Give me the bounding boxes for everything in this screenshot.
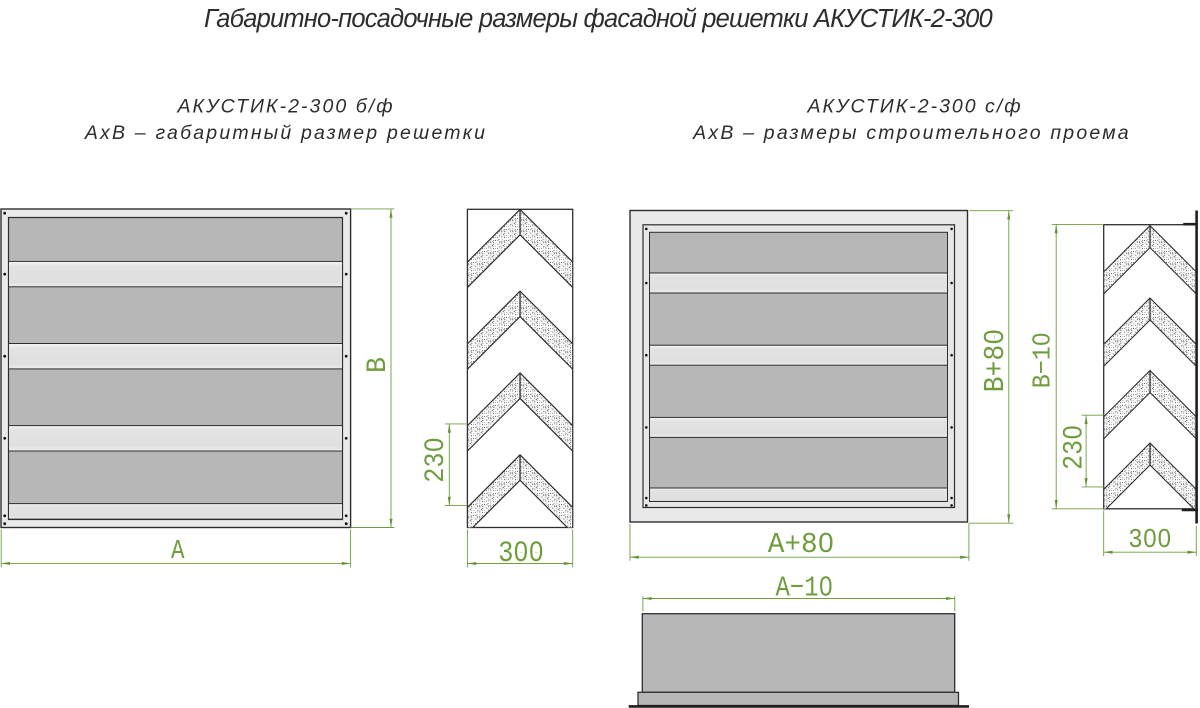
svg-text:B−10: B−10: [1027, 332, 1057, 388]
svg-text:B: B: [363, 357, 394, 373]
svg-text:АКУСТИК-2-300 б/ф: АКУСТИК-2-300 б/ф: [176, 95, 394, 117]
svg-text:АхВ – размеры строительного пр: АхВ – размеры строительного проема: [692, 122, 1131, 144]
svg-text:Габаритно-посадочные размеры ф: Габаритно-посадочные размеры фасадной ре…: [204, 5, 992, 33]
svg-text:230: 230: [1059, 425, 1090, 470]
svg-text:230: 230: [421, 437, 452, 483]
svg-text:B+80: B+80: [979, 329, 1012, 393]
svg-text:A−10: A−10: [776, 572, 834, 605]
svg-text:A+80: A+80: [768, 528, 835, 561]
svg-text:АхВ – габаритный размер решетк: АхВ – габаритный размер решетки: [84, 122, 487, 144]
svg-text:300: 300: [1128, 526, 1171, 556]
svg-text:300: 300: [498, 537, 544, 571]
svg-text:АКУСТИК-2-300 с/ф: АКУСТИК-2-300 с/ф: [807, 95, 1023, 117]
svg-text:A: A: [171, 537, 185, 567]
